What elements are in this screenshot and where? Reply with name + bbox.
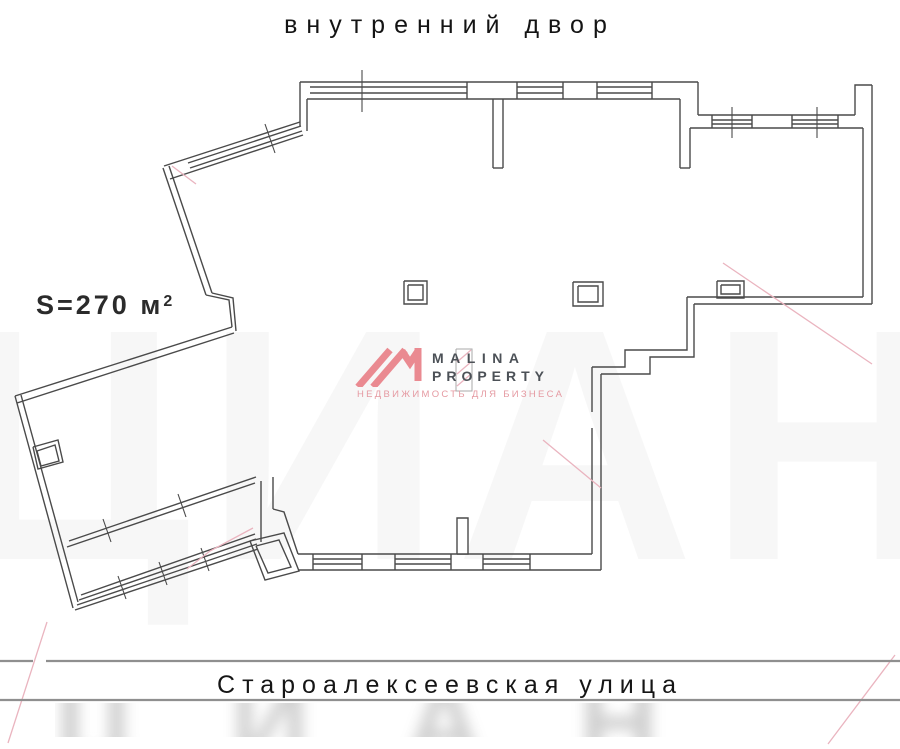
logo-word-property: PROPERTY bbox=[432, 368, 549, 384]
street-label: Староалексеевская улица bbox=[0, 671, 900, 700]
area-value: S=270 м bbox=[36, 290, 163, 320]
courtyard-label: внутренний двор bbox=[0, 11, 900, 40]
area-superscript: 2 bbox=[163, 293, 175, 310]
logo-word-malina: MALINA bbox=[432, 350, 525, 366]
malina-property-logo: MALINA PROPERTY НЕДВИЖИМОСТЬ ДЛЯ БИЗНЕСА bbox=[352, 343, 562, 405]
logo-tagline: НЕДВИЖИМОСТЬ ДЛЯ БИЗНЕСА bbox=[357, 389, 564, 400]
area-label: S=270 м2 bbox=[36, 290, 175, 321]
floor-plan-page: ЦИАН внутренний двор S=270 м2 MALINA PRO… bbox=[0, 0, 900, 749]
malina-logo-m-icon bbox=[354, 347, 426, 387]
